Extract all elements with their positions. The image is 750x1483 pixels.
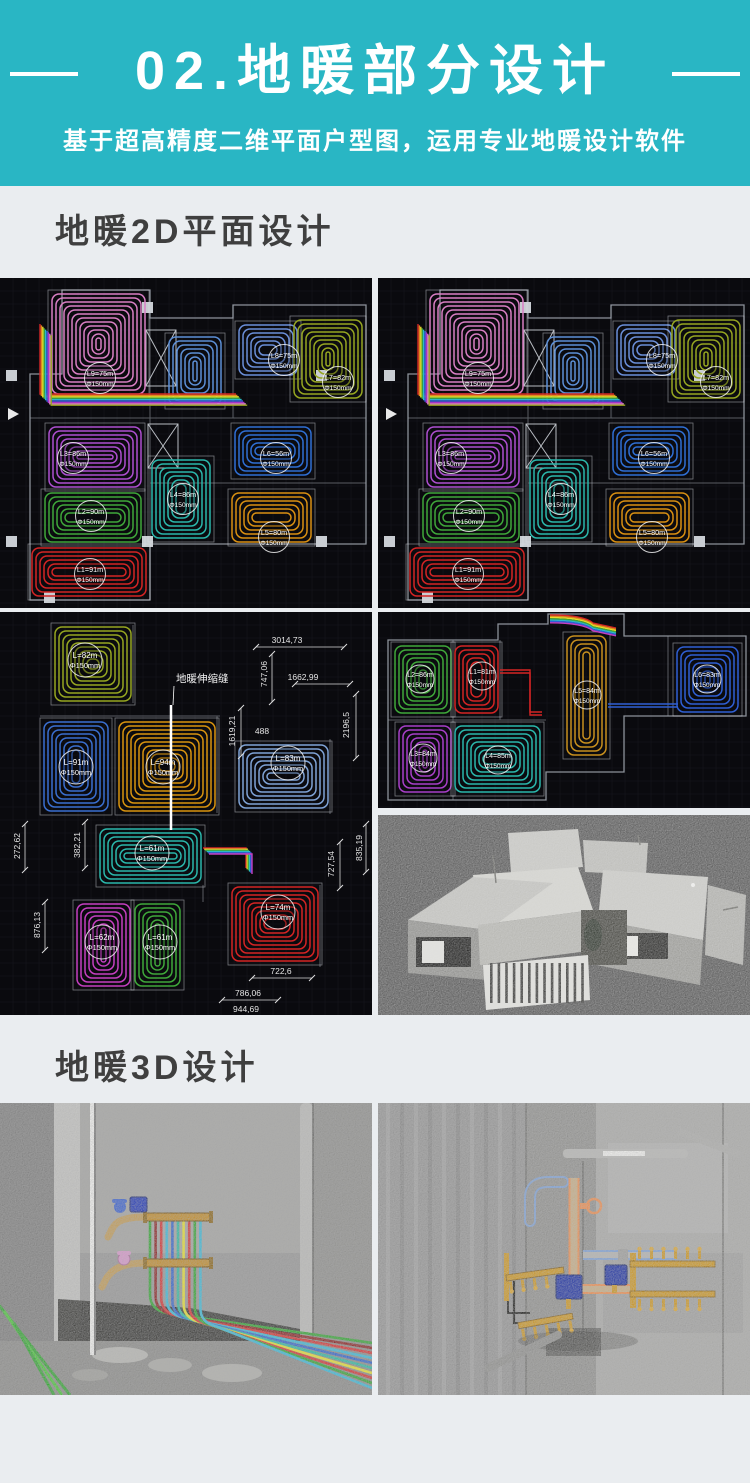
dimension-text: 722,6 <box>270 966 292 976</box>
svg-text:Φ150mm: Φ150mm <box>464 381 492 388</box>
svg-text:Φ150mm: Φ150mm <box>410 761 437 768</box>
room-label: L2=86mΦ150mm <box>406 665 434 693</box>
room-label: L1=81mΦ150mm <box>468 662 496 690</box>
svg-text:Φ150mm: Φ150mm <box>407 682 434 689</box>
svg-text:Φ150mm: Φ150mm <box>145 943 175 952</box>
svg-text:Φ150mm: Φ150mm <box>547 502 575 509</box>
cad-plan-dimensions: L=82mΦ150mmL=91mΦ150mmL=94mΦ150mmL=83mΦ1… <box>0 612 372 1015</box>
room-label: L4=85mΦ150mm <box>484 746 512 774</box>
svg-text:L4=86m: L4=86m <box>548 490 574 499</box>
svg-text:L4=86m: L4=86m <box>170 490 196 499</box>
room-label: L5=80mΦ150mm <box>637 522 668 553</box>
structural-column <box>316 536 327 547</box>
svg-text:Φ150mm: Φ150mm <box>86 381 114 388</box>
room-label: L1=91mΦ150mm <box>453 559 484 590</box>
dimension-text: 1662,99 <box>288 672 319 682</box>
room-label: L=61mΦ150mm <box>143 925 177 959</box>
structural-column <box>6 536 17 547</box>
svg-text:Φ150mm: Φ150mm <box>148 768 178 777</box>
room-label: L=62mΦ150mm <box>85 925 119 959</box>
structural-column <box>422 592 433 603</box>
title-rule-right <box>672 72 740 76</box>
manifold-photo-svg <box>378 1103 750 1395</box>
svg-text:Φ150mm: Φ150mm <box>262 461 290 468</box>
svg-text:Φ150mm: Φ150mm <box>76 577 104 584</box>
page: 02.地暖部分设计 基于超高精度二维平面户型图，运用专业地暖设计软件 地暖2D平… <box>0 0 750 1483</box>
room-label: L1=91mΦ150mm <box>75 559 106 590</box>
page-title: 02.地暖部分设计 <box>0 26 750 105</box>
dimension-text: 835,19 <box>354 835 364 861</box>
structural-column <box>142 536 153 547</box>
svg-text:L9=75m: L9=75m <box>465 369 491 378</box>
cad-plan-overview: L9=75mΦ150mmL8=75mΦ150mmL7=82mΦ150mmL3=8… <box>378 278 750 608</box>
svg-text:Φ150mm: Φ150mm <box>77 519 105 526</box>
svg-text:Φ150mm: Φ150mm <box>485 763 512 770</box>
cad-plan-wide: L2=86mΦ150mmL1=81mΦ150mmL5=84mΦ150mmL6=8… <box>378 612 750 808</box>
dimension-text: 876,13 <box>32 912 42 938</box>
header-banner: 02.地暖部分设计 基于超高精度二维平面户型图，运用专业地暖设计软件 <box>0 0 750 186</box>
svg-text:L=74m: L=74m <box>266 903 291 912</box>
svg-text:Φ150mm: Φ150mm <box>454 577 482 584</box>
svg-text:Φ150mm: Φ150mm <box>638 540 666 547</box>
structural-column <box>44 592 55 603</box>
svg-text:L5=84m: L5=84m <box>574 688 600 695</box>
pointcloud-scan <box>378 815 750 1015</box>
dimension-text: 272,62 <box>12 833 22 859</box>
cad-plan-overview: L9=75mΦ150mmL8=75mΦ150mmL7=82mΦ150mmL3=8… <box>0 278 372 608</box>
room-label: L=83mΦ150mm <box>271 746 305 780</box>
pointcloud-model-image <box>378 815 750 1015</box>
room-label: L=82mΦ150mm <box>68 643 102 677</box>
room-label: L3=84mΦ150mm <box>409 744 437 772</box>
pipes-3d-photo <box>0 1103 372 1395</box>
svg-text:L6=56m: L6=56m <box>263 449 289 458</box>
dimension-text: 727,54 <box>326 851 336 877</box>
svg-text:L1=91m: L1=91m <box>77 565 103 574</box>
structural-column <box>384 536 395 547</box>
room-label: L6=56mΦ150mm <box>261 443 292 474</box>
expansion-joint-note: 地暖伸缩缝 <box>176 672 229 685</box>
room-label: L3=86mΦ150mm <box>436 443 467 474</box>
section-title-2d: 地暖2D平面设计 <box>55 204 334 253</box>
section-title-3d: 地暖3D设计 <box>55 1040 258 1089</box>
svg-text:L7=82m: L7=82m <box>703 373 729 382</box>
svg-text:L2=90m: L2=90m <box>456 507 482 516</box>
svg-text:L=82m: L=82m <box>73 651 98 660</box>
svg-text:L2=86m: L2=86m <box>407 672 433 679</box>
svg-text:L7=82m: L7=82m <box>325 373 351 382</box>
svg-text:Φ150mm: Φ150mm <box>70 661 100 670</box>
svg-text:L8=75m: L8=75m <box>271 351 297 360</box>
room-label: L9=75mΦ150mm <box>85 363 116 394</box>
structural-column <box>520 536 531 547</box>
dimension-text: 786,06 <box>235 988 261 998</box>
structural-column <box>6 370 17 381</box>
svg-text:L4=85m: L4=85m <box>485 753 511 760</box>
room-label: L2=90mΦ150mm <box>76 501 107 532</box>
svg-text:Φ150mm: Φ150mm <box>260 540 288 547</box>
room-label: L4=86mΦ150mm <box>546 484 577 515</box>
svg-text:L3=86m: L3=86m <box>60 449 86 458</box>
svg-text:L3=84m: L3=84m <box>410 751 436 758</box>
svg-text:Φ150mm: Φ150mm <box>437 461 465 468</box>
structural-column <box>384 370 395 381</box>
svg-text:L9=75m: L9=75m <box>87 369 113 378</box>
svg-text:Φ150mm: Φ150mm <box>169 502 197 509</box>
room-label: L=74mΦ150mm <box>261 895 295 929</box>
floorplan-wide-image: L2=86mΦ150mmL1=81mΦ150mmL5=84mΦ150mmL6=8… <box>378 612 750 808</box>
manifold-3d-photo <box>378 1103 750 1395</box>
page-subtitle: 基于超高精度二维平面户型图，运用专业地暖设计软件 <box>0 121 750 156</box>
svg-text:Φ150mm: Φ150mm <box>263 913 293 922</box>
room-label: L2=90mΦ150mm <box>454 501 485 532</box>
svg-text:L2=90m: L2=90m <box>78 507 104 516</box>
svg-text:L=83m: L=83m <box>276 754 301 763</box>
room-label: L3=86mΦ150mm <box>58 443 89 474</box>
room-label: L8=75mΦ150mm <box>647 345 678 376</box>
svg-text:Φ150mm: Φ150mm <box>324 385 352 392</box>
room-label: L4=86mΦ150mm <box>168 484 199 515</box>
pipes-photo-svg <box>0 1103 372 1395</box>
room-label: L6=56mΦ150mm <box>639 443 670 474</box>
dimension-text: 2196,5 <box>341 712 351 738</box>
dimension-text: 747,06 <box>259 661 269 687</box>
room-label: L7=82mΦ150mm <box>323 367 354 398</box>
svg-text:Φ150mm: Φ150mm <box>137 854 167 863</box>
svg-text:Φ150mm: Φ150mm <box>270 363 298 370</box>
room-label: L7=82mΦ150mm <box>701 367 732 398</box>
dimension-text: 1619,21 <box>227 715 237 746</box>
floorplan-2d-image-2: L9=75mΦ150mmL8=75mΦ150mmL7=82mΦ150mmL3=8… <box>378 278 750 608</box>
svg-text:Φ150mm: Φ150mm <box>702 385 730 392</box>
svg-text:L3=86m: L3=86m <box>438 449 464 458</box>
dimension-text: 488 <box>255 726 269 736</box>
svg-text:L1=91m: L1=91m <box>455 565 481 574</box>
svg-text:Φ150mm: Φ150mm <box>61 768 91 777</box>
floorplan-dimension-image: L=82mΦ150mmL=91mΦ150mmL=94mΦ150mmL=83mΦ1… <box>0 612 372 1015</box>
svg-text:L5=80m: L5=80m <box>261 528 287 537</box>
svg-text:Φ150mm: Φ150mm <box>87 943 117 952</box>
room-label: L8=75mΦ150mm <box>269 345 300 376</box>
svg-text:Φ150mm: Φ150mm <box>455 519 483 526</box>
structural-column <box>694 536 705 547</box>
structural-column <box>520 302 531 313</box>
svg-text:Φ150mm: Φ150mm <box>273 764 303 773</box>
dimension-text: 3014,73 <box>272 635 303 645</box>
svg-text:L=91m: L=91m <box>64 758 89 767</box>
room-label: L=61mΦ150mm <box>135 836 169 870</box>
svg-text:Φ150mm: Φ150mm <box>694 682 721 689</box>
svg-text:L=61m: L=61m <box>140 844 165 853</box>
room-label: L5=84mΦ150mm <box>573 681 601 709</box>
svg-text:Φ150mm: Φ150mm <box>640 461 668 468</box>
room-label: L6=83mΦ150mm <box>693 665 721 693</box>
structural-column <box>142 302 153 313</box>
svg-text:L5=80m: L5=80m <box>639 528 665 537</box>
svg-text:L1=81m: L1=81m <box>469 669 495 676</box>
room-label: L=91mΦ150mm <box>59 750 93 784</box>
dimension-text: 382,21 <box>72 832 82 858</box>
svg-text:Φ150mm: Φ150mm <box>648 363 676 370</box>
svg-text:L6=83m: L6=83m <box>694 672 720 679</box>
floorplan-2d-image-1: L9=75mΦ150mmL8=75mΦ150mmL7=82mΦ150mmL3=8… <box>0 278 372 608</box>
svg-text:L8=75m: L8=75m <box>649 351 675 360</box>
svg-text:Φ150mm: Φ150mm <box>59 461 87 468</box>
svg-text:L=61m: L=61m <box>148 933 173 942</box>
svg-text:L=62m: L=62m <box>90 933 115 942</box>
dimension-text: 944,69 <box>233 1004 259 1014</box>
room-label: L=94mΦ150mm <box>146 750 180 784</box>
svg-text:Φ150mm: Φ150mm <box>469 679 496 686</box>
room-label: L9=75mΦ150mm <box>463 363 494 394</box>
svg-text:L6=56m: L6=56m <box>641 449 667 458</box>
svg-text:Φ150mm: Φ150mm <box>574 698 601 705</box>
room-label: L5=80mΦ150mm <box>259 522 290 553</box>
